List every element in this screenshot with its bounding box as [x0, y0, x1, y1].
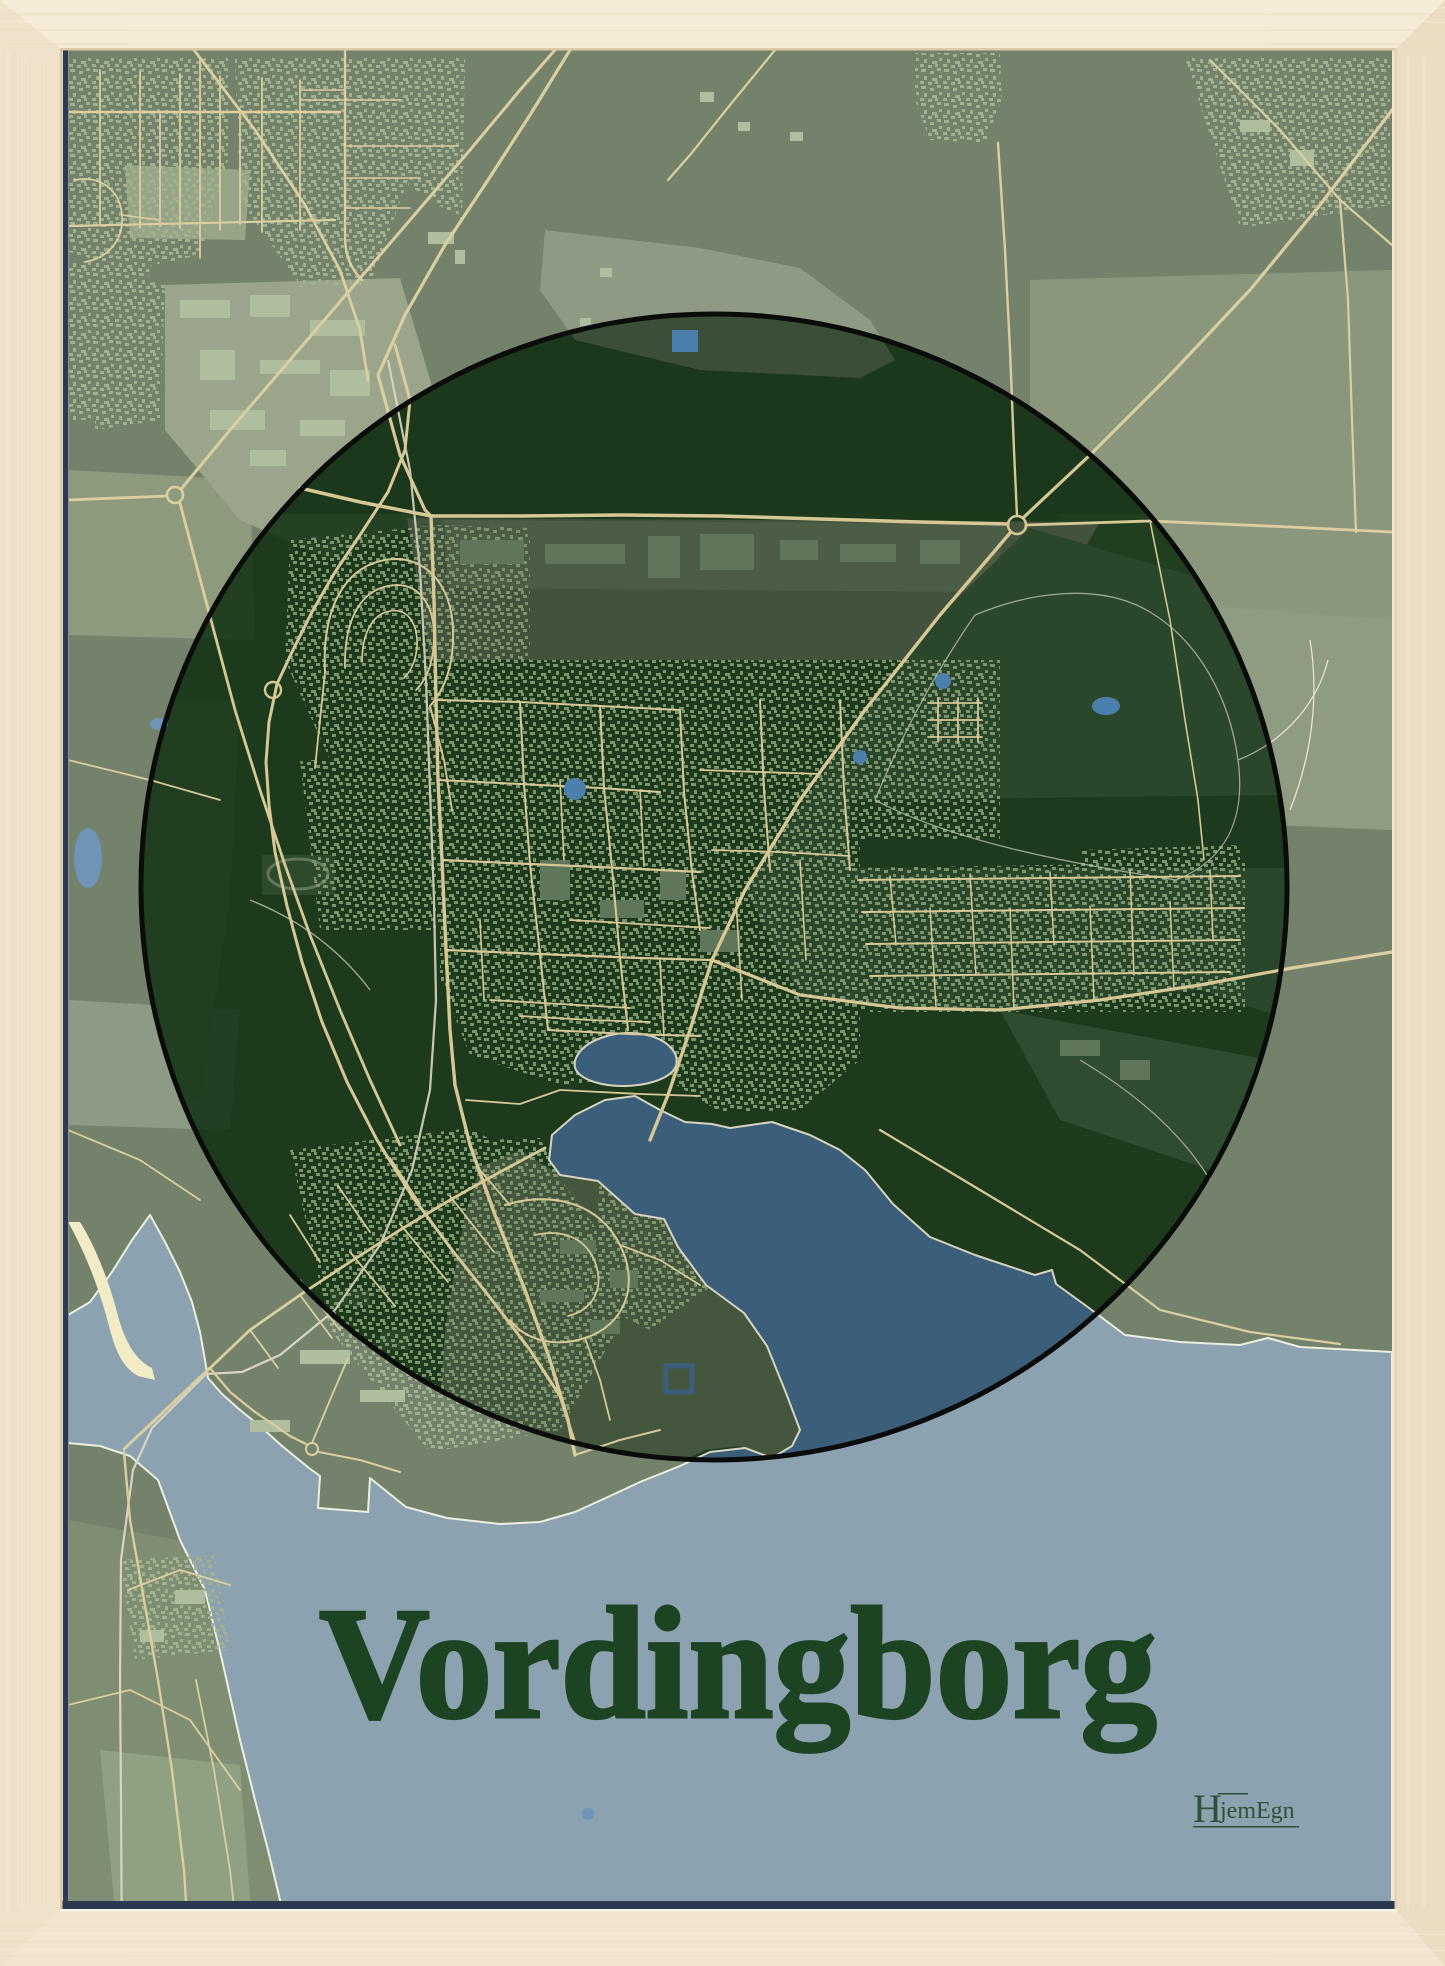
svg-text:jemEgn: jemEgn	[1219, 1798, 1295, 1824]
svg-text:Vordingborg: Vordingborg	[319, 1574, 1157, 1753]
svg-text:H: H	[1193, 1786, 1222, 1831]
